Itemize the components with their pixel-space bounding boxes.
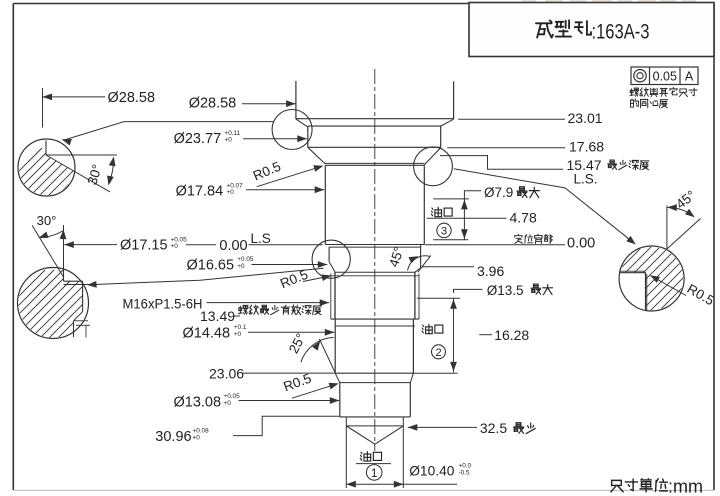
- svg-text:L.S: L.S: [251, 231, 271, 246]
- svg-text:0.05: 0.05: [653, 69, 677, 83]
- svg-text:25°: 25°: [286, 331, 309, 356]
- svg-text:+0: +0: [193, 434, 201, 441]
- svg-text:R0.5: R0.5: [281, 370, 313, 394]
- svg-text:-0.5: -0.5: [459, 469, 470, 476]
- svg-text:R0.5: R0.5: [278, 267, 310, 292]
- svg-text:15.47: 15.47: [567, 157, 602, 173]
- svg-text:Ø10.40: Ø10.40: [409, 463, 455, 478]
- svg-text:0.00: 0.00: [219, 238, 247, 254]
- svg-text:3: 3: [441, 226, 447, 238]
- svg-text:Ø16.65: Ø16.65: [187, 258, 235, 274]
- svg-text:+0: +0: [227, 189, 235, 196]
- svg-text::163A-3: :163A-3: [592, 21, 650, 44]
- svg-text:3.96: 3.96: [477, 263, 504, 279]
- svg-text:Ø13.08: Ø13.08: [174, 395, 222, 411]
- svg-text:2: 2: [435, 347, 441, 359]
- svg-text:M16xP1.5-6H: M16xP1.5-6H: [123, 295, 203, 311]
- svg-text:23.06: 23.06: [209, 366, 244, 382]
- svg-text:Ø28.58: Ø28.58: [108, 90, 156, 106]
- svg-text:Ø14.48: Ø14.48: [183, 326, 231, 342]
- svg-text:+0: +0: [237, 263, 245, 270]
- svg-text:17.68: 17.68: [569, 139, 604, 155]
- svg-text:+0: +0: [224, 400, 232, 407]
- svg-text:30.96: 30.96: [155, 429, 191, 445]
- svg-text:Ø17.15: Ø17.15: [120, 238, 168, 254]
- svg-text:A: A: [685, 69, 694, 83]
- svg-text:0.00: 0.00: [567, 236, 595, 252]
- svg-text:13.49: 13.49: [200, 308, 235, 324]
- svg-text:1: 1: [371, 466, 378, 480]
- svg-text:30°: 30°: [37, 213, 57, 228]
- svg-text:Ø17.84: Ø17.84: [176, 184, 224, 200]
- svg-text::mm: :mm: [668, 477, 703, 496]
- svg-text:45°: 45°: [386, 245, 407, 269]
- svg-text:16.28: 16.28: [494, 327, 529, 343]
- svg-text:+0: +0: [171, 243, 179, 250]
- svg-text:Ø7.9: Ø7.9: [484, 185, 513, 200]
- svg-text:30°: 30°: [84, 163, 105, 187]
- svg-text:32.5: 32.5: [480, 420, 507, 436]
- svg-text:L.S.: L.S.: [574, 172, 598, 187]
- svg-text:23.01: 23.01: [568, 110, 603, 126]
- svg-text:+0: +0: [234, 331, 242, 338]
- svg-text:Ø23.77: Ø23.77: [174, 131, 222, 147]
- svg-text:+0: +0: [225, 137, 233, 144]
- svg-text:R0.5: R0.5: [685, 281, 717, 308]
- svg-text:Ø13.5: Ø13.5: [487, 283, 524, 298]
- svg-text:4.78: 4.78: [510, 210, 537, 226]
- svg-text:Ø28.58: Ø28.58: [189, 95, 237, 111]
